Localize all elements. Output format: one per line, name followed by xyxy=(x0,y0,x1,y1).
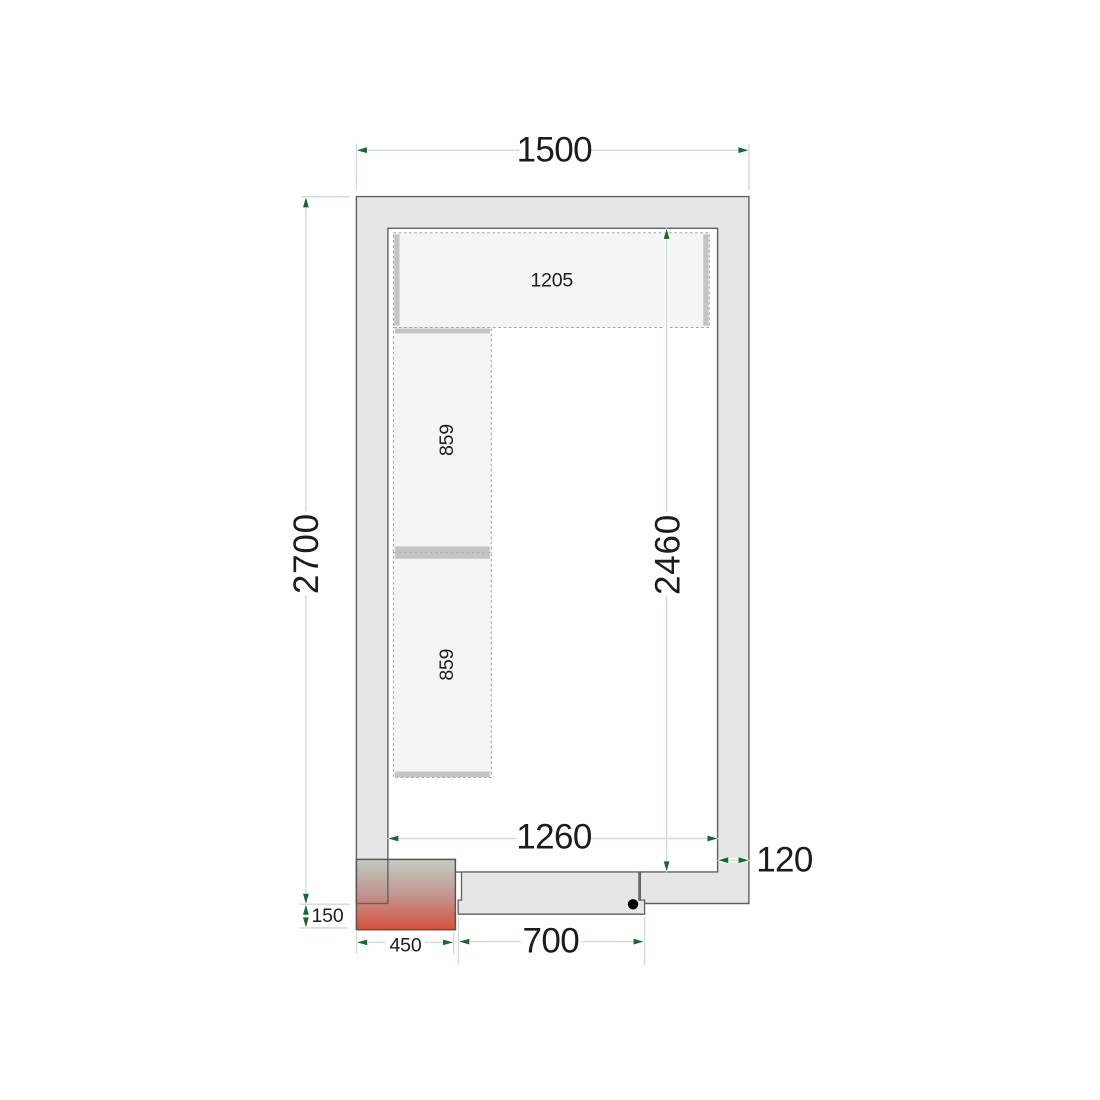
svg-text:450: 450 xyxy=(390,934,422,956)
svg-text:700: 700 xyxy=(522,922,579,961)
svg-text:150: 150 xyxy=(312,905,344,927)
svg-text:1260: 1260 xyxy=(516,817,592,856)
svg-text:1500: 1500 xyxy=(517,130,593,169)
svg-text:1205: 1205 xyxy=(531,270,574,292)
svg-text:859: 859 xyxy=(436,649,458,681)
svg-text:2460: 2460 xyxy=(649,514,688,595)
svg-text:859: 859 xyxy=(436,424,458,456)
svg-text:2700: 2700 xyxy=(287,513,326,594)
svg-text:120: 120 xyxy=(756,840,813,879)
